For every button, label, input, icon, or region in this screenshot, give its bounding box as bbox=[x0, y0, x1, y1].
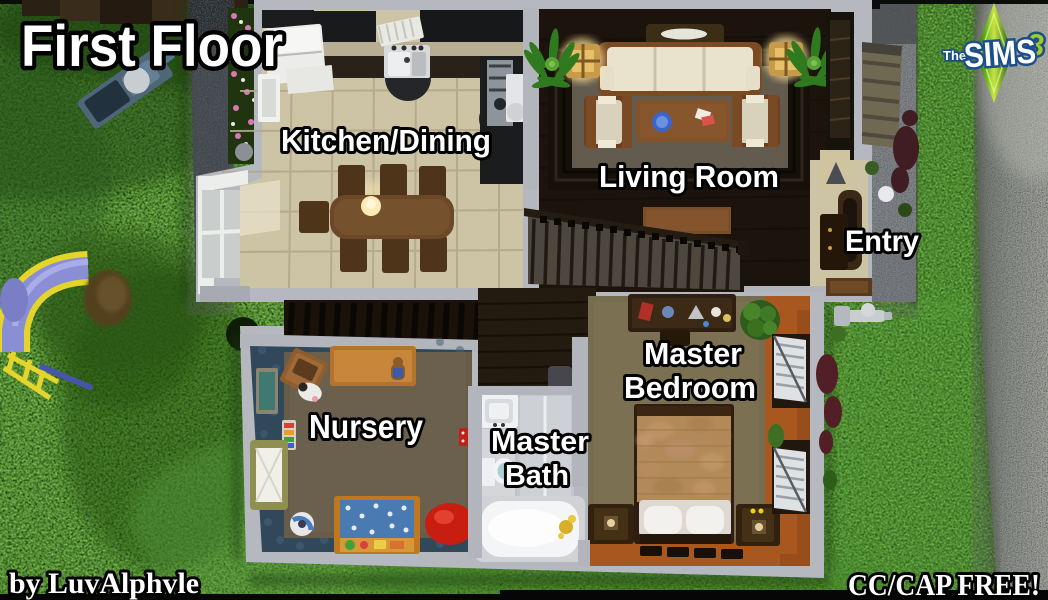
svg-text:The: The bbox=[943, 48, 966, 63]
svg-text:Entry: Entry bbox=[845, 225, 919, 258]
svg-text:Bedroom: Bedroom bbox=[624, 370, 756, 405]
svg-text:Bath: Bath bbox=[505, 460, 569, 492]
svg-text:CC/CAP FREE!: CC/CAP FREE! bbox=[848, 567, 1040, 600]
svg-text:Master: Master bbox=[644, 336, 742, 371]
svg-text:Living Room: Living Room bbox=[599, 159, 779, 194]
svg-text:First Floor: First Floor bbox=[21, 14, 283, 79]
svg-text:Kitchen/Dining: Kitchen/Dining bbox=[281, 123, 491, 158]
svg-text:SIMS: SIMS bbox=[963, 33, 1037, 76]
svg-text:by LuvAlphvle: by LuvAlphvle bbox=[9, 567, 199, 600]
svg-text:Master: Master bbox=[491, 426, 589, 458]
svg-text:Nursery: Nursery bbox=[309, 408, 424, 445]
